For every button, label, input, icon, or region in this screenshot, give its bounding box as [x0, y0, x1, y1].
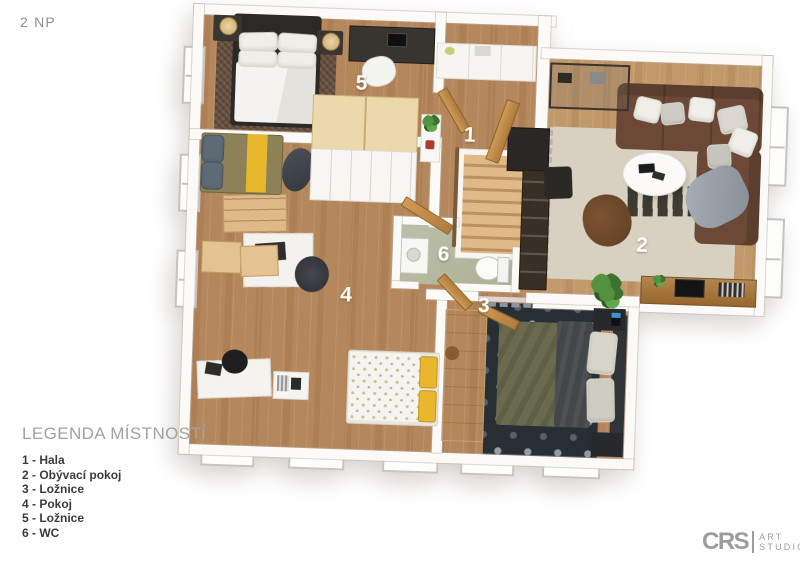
- yellow-blanket: [246, 134, 268, 193]
- floral-duvet: [348, 352, 420, 422]
- yellow-pillow: [419, 356, 438, 389]
- day-bed-pillow: [202, 134, 225, 163]
- legend-item: 5 - Ložnice: [22, 511, 206, 526]
- legend: LEGENDA MÍSTNOSTÍ 1 - Hala 2 - Obývací p…: [22, 424, 206, 541]
- sideboard-decor: [475, 46, 491, 57]
- room-number-living: 2: [630, 233, 655, 258]
- legend-item: 6 - WC: [22, 526, 206, 541]
- logo-words: ART STUDIO: [759, 532, 800, 553]
- room-number-hall: 1: [457, 123, 482, 148]
- black-stool: [544, 166, 573, 199]
- shelf-books: [718, 282, 744, 297]
- logo-divider: [752, 531, 754, 553]
- logo-word-art: ART: [759, 532, 800, 543]
- legend-title: LEGENDA MÍSTNOSTÍ: [22, 424, 206, 444]
- sofa-pillow: [660, 102, 686, 126]
- legend-item: 1 - Hala: [22, 453, 206, 468]
- console-decor: [558, 73, 572, 83]
- brand-logo: CRS ART STUDIO: [702, 528, 800, 556]
- wood-box: [201, 240, 242, 273]
- room-number-bedroom-right: 3: [471, 294, 496, 319]
- wardrobe-top: [311, 94, 419, 154]
- yellow-pillow: [418, 390, 437, 423]
- floor-plan-render: 5 1 2 6 3 4: [178, 4, 778, 484]
- bed-duvet-olive: [496, 321, 564, 427]
- double-bed-duvet: [234, 61, 316, 124]
- room-number-bedroom-left: 5: [349, 71, 374, 96]
- red-decor: [425, 140, 434, 149]
- wood-dresser: [223, 194, 288, 233]
- wardrobe-bench: [441, 309, 488, 442]
- legend-item: 4 - Pokoj: [22, 497, 206, 512]
- bed-pillow: [586, 378, 615, 422]
- floor-label: 2 NP: [20, 14, 56, 30]
- sofa-pillow: [687, 96, 716, 123]
- toilet-tank: [497, 257, 510, 283]
- logo-brand-text: CRS: [702, 528, 748, 556]
- laptop: [387, 33, 407, 48]
- bed-pillow: [586, 331, 618, 376]
- floor-plan-page: 2 NP: [0, 0, 800, 566]
- wc-wall: [391, 281, 418, 289]
- dark-dresser: [507, 127, 551, 172]
- room-number-wc: 6: [431, 242, 456, 267]
- wardrobe-front: [309, 148, 417, 204]
- legend-item: 2 - Obývací pokoj: [22, 468, 206, 483]
- console-table: [549, 62, 631, 111]
- wood-box: [240, 245, 279, 277]
- tv: [674, 279, 705, 298]
- vanity-items: [205, 362, 223, 377]
- smartphone: [611, 313, 620, 326]
- day-bed-pillow: [201, 161, 224, 190]
- room-number-kids-room: 4: [334, 283, 359, 308]
- logo-word-studio: STUDIO: [759, 542, 800, 553]
- legend-item: 3 - Ložnice: [22, 482, 206, 497]
- bed-pillow: [238, 50, 278, 68]
- nightstand: [591, 432, 624, 457]
- nightstand: [593, 308, 626, 331]
- bed-pillow: [277, 51, 317, 69]
- bed-pillow: [239, 32, 278, 52]
- shelf-books: [277, 375, 290, 391]
- console-decor: [590, 72, 606, 85]
- shelf-box: [291, 378, 301, 390]
